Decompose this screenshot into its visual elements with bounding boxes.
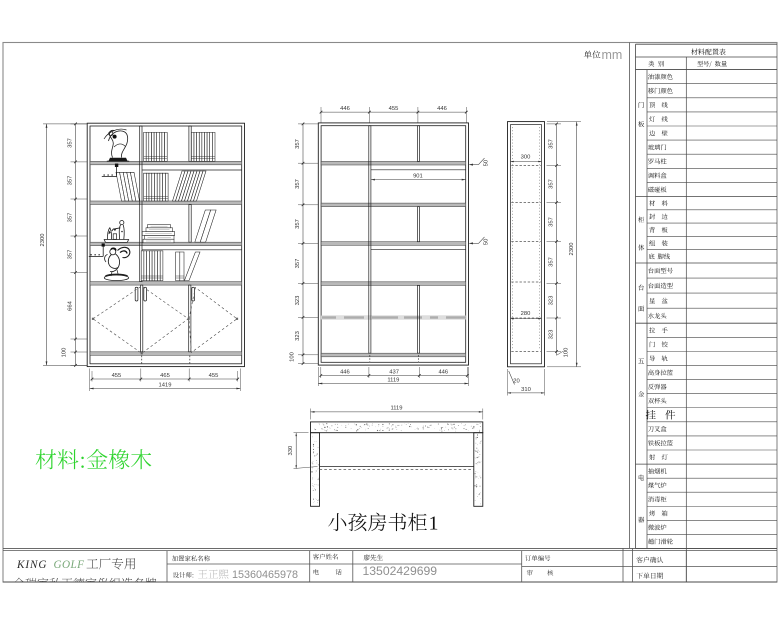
svg-text:mm: mm	[602, 48, 623, 62]
svg-text:437: 437	[389, 369, 399, 375]
svg-text:357: 357	[549, 257, 555, 267]
svg-text:2300: 2300	[569, 243, 575, 256]
svg-text:310: 310	[521, 387, 531, 393]
svg-text:357: 357	[295, 219, 301, 229]
svg-text:100: 100	[290, 352, 296, 362]
svg-text:357: 357	[549, 217, 555, 227]
svg-text:15360465978: 15360465978	[232, 569, 298, 581]
svg-text:280: 280	[521, 311, 531, 317]
svg-text:100: 100	[564, 348, 570, 358]
svg-text:357: 357	[68, 213, 74, 223]
svg-text:323: 323	[549, 330, 555, 340]
svg-text:455: 455	[209, 373, 219, 379]
svg-text:664: 664	[68, 300, 74, 310]
svg-text:465: 465	[160, 373, 170, 379]
svg-text:357: 357	[295, 139, 301, 149]
svg-text:300: 300	[521, 155, 531, 161]
svg-text:323: 323	[295, 296, 301, 306]
svg-text:2300: 2300	[40, 234, 46, 247]
svg-text:446: 446	[438, 369, 448, 375]
svg-text:357: 357	[68, 176, 74, 186]
svg-text:50: 50	[484, 239, 490, 245]
svg-text:446: 446	[437, 106, 447, 112]
svg-text:20: 20	[513, 379, 519, 385]
svg-text:455: 455	[389, 106, 399, 112]
svg-text:357: 357	[549, 179, 555, 189]
svg-text:357: 357	[68, 138, 74, 148]
svg-text:1119: 1119	[390, 406, 402, 412]
svg-text:GOLF: GOLF	[54, 559, 85, 571]
svg-text:357: 357	[549, 139, 555, 149]
svg-text:50: 50	[484, 160, 490, 166]
svg-text:357: 357	[68, 250, 74, 260]
svg-text:446: 446	[340, 369, 350, 375]
svg-text:455: 455	[112, 373, 122, 379]
svg-text:KING: KING	[16, 559, 47, 571]
svg-text:357: 357	[295, 259, 301, 269]
svg-text:357: 357	[295, 179, 301, 189]
svg-text:323: 323	[549, 296, 555, 306]
svg-text:100: 100	[62, 348, 68, 358]
svg-text:1419: 1419	[159, 383, 172, 389]
svg-text:1: 1	[429, 513, 439, 535]
svg-text:1119: 1119	[387, 377, 399, 383]
svg-text:446: 446	[340, 106, 350, 112]
svg-text:323: 323	[295, 331, 301, 341]
svg-text:901: 901	[413, 173, 423, 179]
svg-text:13502429699: 13502429699	[363, 564, 438, 578]
svg-text:330: 330	[288, 446, 294, 456]
